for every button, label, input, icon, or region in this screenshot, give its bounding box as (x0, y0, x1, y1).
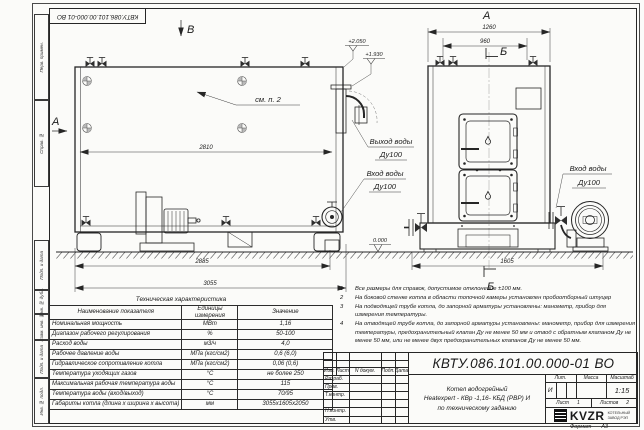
view-label-b: В (187, 24, 194, 36)
upper-door (459, 114, 518, 169)
param-unit: мм (182, 400, 238, 410)
elevation-zero: 0.000 (373, 238, 388, 244)
sheet-cell: Лист 1 (545, 398, 591, 407)
valve-icon (241, 58, 250, 68)
elevation-outlet: +1.930 (365, 52, 383, 58)
title-block-grid (381, 352, 382, 424)
col-header: Значение (238, 306, 333, 320)
right-inlet-valve (549, 207, 571, 239)
title-line: Котел водогрейный (447, 385, 508, 395)
table-row: Температура воды (вход/выход)°С70/95 (50, 390, 333, 400)
title-line: Heatexpert - КВр -1,16- КБД (РВР) И (424, 394, 530, 404)
param-unit: % (182, 330, 238, 340)
param-name: Расход воды (50, 340, 182, 350)
row-tkontr: Т.контр. (323, 391, 349, 399)
sheet-value: 1 (577, 400, 580, 406)
title-block-grid (323, 399, 408, 400)
side-view (75, 58, 377, 252)
logo-text: KVZR (570, 409, 605, 423)
param-value: 4,0 (238, 340, 333, 350)
note-text: Все размеры для справок, допустимое откл… (355, 285, 522, 293)
format-label: Формат А3 (540, 424, 638, 430)
sheets-value: 2 (626, 400, 629, 406)
title-block-grid (395, 352, 396, 424)
scale-label: Масштаб (606, 374, 638, 382)
dim-1260: 1260 (482, 25, 496, 31)
document-title: Котел водогрейный Heatexpert - КВр -1,16… (409, 374, 545, 424)
ground-line (56, 252, 633, 259)
title-block-grid (323, 360, 408, 361)
section-label-b-top: Б (500, 46, 507, 58)
elevation-top: +2.050 (348, 39, 366, 45)
note-number: 2 (340, 294, 355, 302)
stoker-drive (136, 192, 200, 251)
sheet-label: Лист (556, 400, 569, 406)
drawing-sheet: { "colors": {"ink": "#262626", "paper": … (0, 0, 644, 430)
valve-icon (529, 57, 538, 67)
dim-1605: 1605 (500, 259, 514, 265)
param-value: не более 250 (238, 370, 333, 380)
title-block-grid (349, 352, 350, 424)
valve-icon (312, 217, 321, 227)
see-note-label: см. п. 2 (255, 95, 282, 104)
tech-table: Наименование показателя Единицы измерени… (49, 305, 333, 410)
lug-mark-icon (83, 124, 92, 133)
note-number: 3 (340, 303, 355, 319)
outlet-label: Выход воды (370, 137, 413, 146)
param-name: Гидравлическое сопротивление котла (50, 360, 182, 370)
list-item: 4На отводящей трубе котла, до запорной а… (340, 320, 636, 344)
front-view (404, 52, 609, 268)
param-name: Номинальная мощность (50, 320, 182, 330)
tech-table-title: Техническая характеристика (49, 296, 313, 303)
list-item: 3На подводящей трубе котла, до запорной … (340, 303, 636, 319)
title-line: по техническому заданию (438, 404, 517, 414)
left-inlet-valve (404, 214, 427, 237)
note-text: На отводящей трубе котла, до запорной ар… (355, 320, 636, 344)
param-unit: МПа (кгс/см2) (182, 350, 238, 360)
param-name: Температура воды (вход/выход) (50, 390, 182, 400)
title-block-grid (566, 382, 567, 398)
outlet-dn-label: Ду100 (379, 150, 403, 159)
door-handle-icon (485, 191, 490, 199)
col-izm: Изм. (323, 367, 336, 375)
note-text: На боковой стенке котла в области топочн… (355, 294, 611, 302)
param-name: Температура уходящих газов (50, 370, 182, 380)
notes-list: 1Все размеры для справок, допустимое отк… (340, 285, 636, 346)
format-value: А3 (601, 424, 608, 430)
lit-label: Лит. (545, 374, 576, 382)
note-number: 1 (340, 285, 355, 293)
col-podp: Подп. (381, 367, 395, 375)
table-row: Рабочее давление водыМПа (кгс/см2)0,6 (6… (50, 350, 333, 360)
param-value: 0,6 (6,0) (238, 350, 333, 360)
valve-icon (301, 58, 310, 68)
valve-icon (86, 58, 95, 68)
col-data: Дата (395, 367, 408, 375)
view-label-a-side: А (51, 116, 59, 128)
table-row: Гидравлическое сопротивление котлаМПа (к… (50, 360, 333, 370)
param-value: 1,16 (238, 320, 333, 330)
col-header: Наименование показателя (50, 306, 182, 320)
valve-icon (449, 57, 458, 67)
logo-subtitle: КОТЕЛЬНЫЙ ЗАВОД РЭП (608, 411, 631, 420)
lower-door (459, 169, 518, 221)
lug-mark-icon (238, 77, 247, 86)
logo-subtitle-line: КОТЕЛЬНЫЙ (608, 411, 631, 415)
sheets-label: Листов (600, 400, 618, 406)
param-name: Рабочее давление воды (50, 350, 182, 360)
format-word: Формат (570, 424, 591, 430)
door-handle-icon (485, 136, 490, 144)
blower-fan (567, 202, 609, 252)
kvzr-logo-icon (554, 409, 567, 422)
param-value: 115 (238, 380, 333, 390)
tech-table-header-row: Наименование показателя Единицы измерени… (50, 306, 333, 320)
valve-icon (82, 217, 91, 227)
param-value: 3055х1605х2050 (238, 400, 333, 410)
col-header: Единицы измерения (182, 306, 238, 320)
col-list: Лист (336, 367, 349, 375)
valve-icon (222, 217, 231, 227)
inlet-dn-label-front: Ду100 (577, 178, 601, 187)
param-unit: МВт (182, 320, 238, 330)
lug-mark-icon (238, 124, 247, 133)
list-item: 1Все размеры для справок, допустимое отк… (340, 285, 636, 293)
table-row: Расход водым3/ч4,0 (50, 340, 333, 350)
row-utv: Утв. (323, 416, 349, 425)
outlet-pipe (331, 85, 377, 133)
table-row: Номинальная мощностьМВт1,16 (50, 320, 333, 330)
inlet-dn-label-side: Ду100 (373, 182, 397, 191)
table-row: Максимальная рабочая температура воды°С1… (50, 380, 333, 390)
inlet-label-side: Вход воды (367, 169, 404, 178)
title-block-grid (556, 382, 557, 398)
mass-label: Масса (576, 374, 606, 382)
boiler-base (420, 223, 555, 252)
company-logo: KVZR КОТЕЛЬНЫЙ ЗАВОД РЭП (546, 407, 638, 424)
dim-2810: 2810 (198, 145, 213, 151)
scale-value: 1:15 (606, 382, 638, 398)
inlet-label-front: Вход воды (570, 164, 607, 173)
view-label-a-front: А (482, 10, 490, 22)
param-value: 70/95 (238, 390, 333, 400)
inlet-flange (322, 202, 342, 251)
table-row: Температура уходящих газов°Сне более 250 (50, 370, 333, 380)
param-name: Диапазон рабочего регулирования (50, 330, 182, 340)
row-razrab: Разраб. (323, 375, 349, 383)
table-row: Габариты котла (длина х ширина х высота)… (50, 400, 333, 410)
param-unit: °С (182, 390, 238, 400)
table-row: Диапазон рабочего регулирования%50-100 (50, 330, 333, 340)
doc-number: КВТУ.086.101.00.000-01 ВО (409, 352, 638, 374)
param-unit: м3/ч (182, 340, 238, 350)
valve-icon (98, 58, 107, 68)
param-value: 50-100 (238, 330, 333, 340)
param-name: Максимальная рабочая температура воды (50, 380, 182, 390)
row-nkontr: Н.контр. (323, 407, 349, 416)
dim-960: 960 (480, 39, 491, 45)
sheets-cell: Листов 2 (591, 398, 638, 407)
param-value: 0,06 (0,6) (238, 360, 333, 370)
dim-2885: 2885 (194, 259, 209, 265)
dim-3055: 3055 (203, 281, 217, 287)
param-unit: °С (182, 380, 238, 390)
list-item: 2На боковой стенке котла в области топоч… (340, 294, 636, 302)
row-prov: Пров. (323, 383, 349, 391)
param-name: Габариты котла (длина х ширина х высота) (50, 400, 182, 410)
note-text: На подводящей трубе котла, до запорной а… (355, 303, 636, 319)
note-number: 4 (340, 320, 355, 344)
logo-subtitle-line: ЗАВОД РЭП (608, 416, 631, 420)
param-unit: °С (182, 370, 238, 380)
lug-mark-icon (83, 77, 92, 86)
lit-value: И (545, 382, 556, 398)
param-unit: МПа (кгс/см2) (182, 360, 238, 370)
col-doc: N докум. (349, 367, 381, 375)
